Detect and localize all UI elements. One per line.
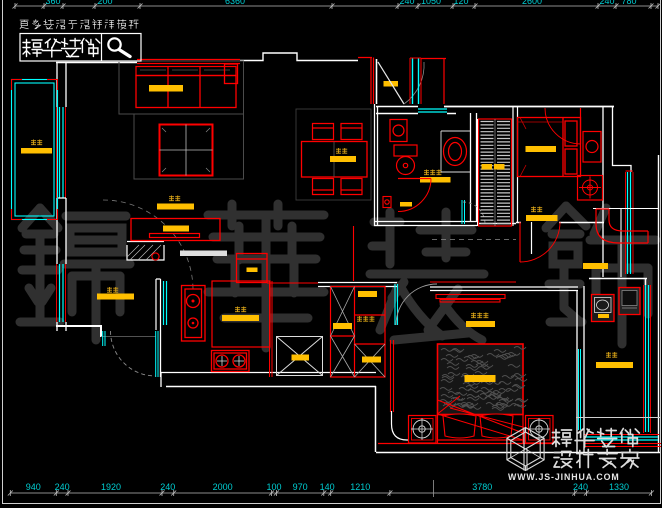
svg-text:940: 940 — [26, 482, 41, 492]
svg-text:2600: 2600 — [522, 0, 542, 6]
svg-text:1920: 1920 — [101, 482, 121, 492]
svg-text:200: 200 — [97, 0, 112, 6]
svg-text:1330: 1330 — [609, 482, 629, 492]
svg-text:100: 100 — [266, 482, 281, 492]
svg-text:240: 240 — [399, 0, 414, 6]
svg-text:2000: 2000 — [213, 482, 233, 492]
svg-text:1050: 1050 — [421, 0, 441, 6]
svg-text:120: 120 — [453, 0, 468, 6]
svg-text:970: 970 — [293, 482, 308, 492]
svg-text:240: 240 — [55, 482, 70, 492]
svg-text:6360: 6360 — [225, 0, 245, 6]
svg-text:780: 780 — [621, 0, 636, 6]
svg-text:240: 240 — [573, 482, 588, 492]
svg-text:240: 240 — [599, 0, 614, 6]
svg-text:3780: 3780 — [472, 482, 492, 492]
svg-text:140: 140 — [320, 482, 335, 492]
svg-text:360: 360 — [45, 0, 60, 6]
svg-text:WWW.JS-JINHUA.COM: WWW.JS-JINHUA.COM — [508, 472, 620, 482]
svg-text:240: 240 — [160, 482, 175, 492]
svg-text:1210: 1210 — [350, 482, 370, 492]
